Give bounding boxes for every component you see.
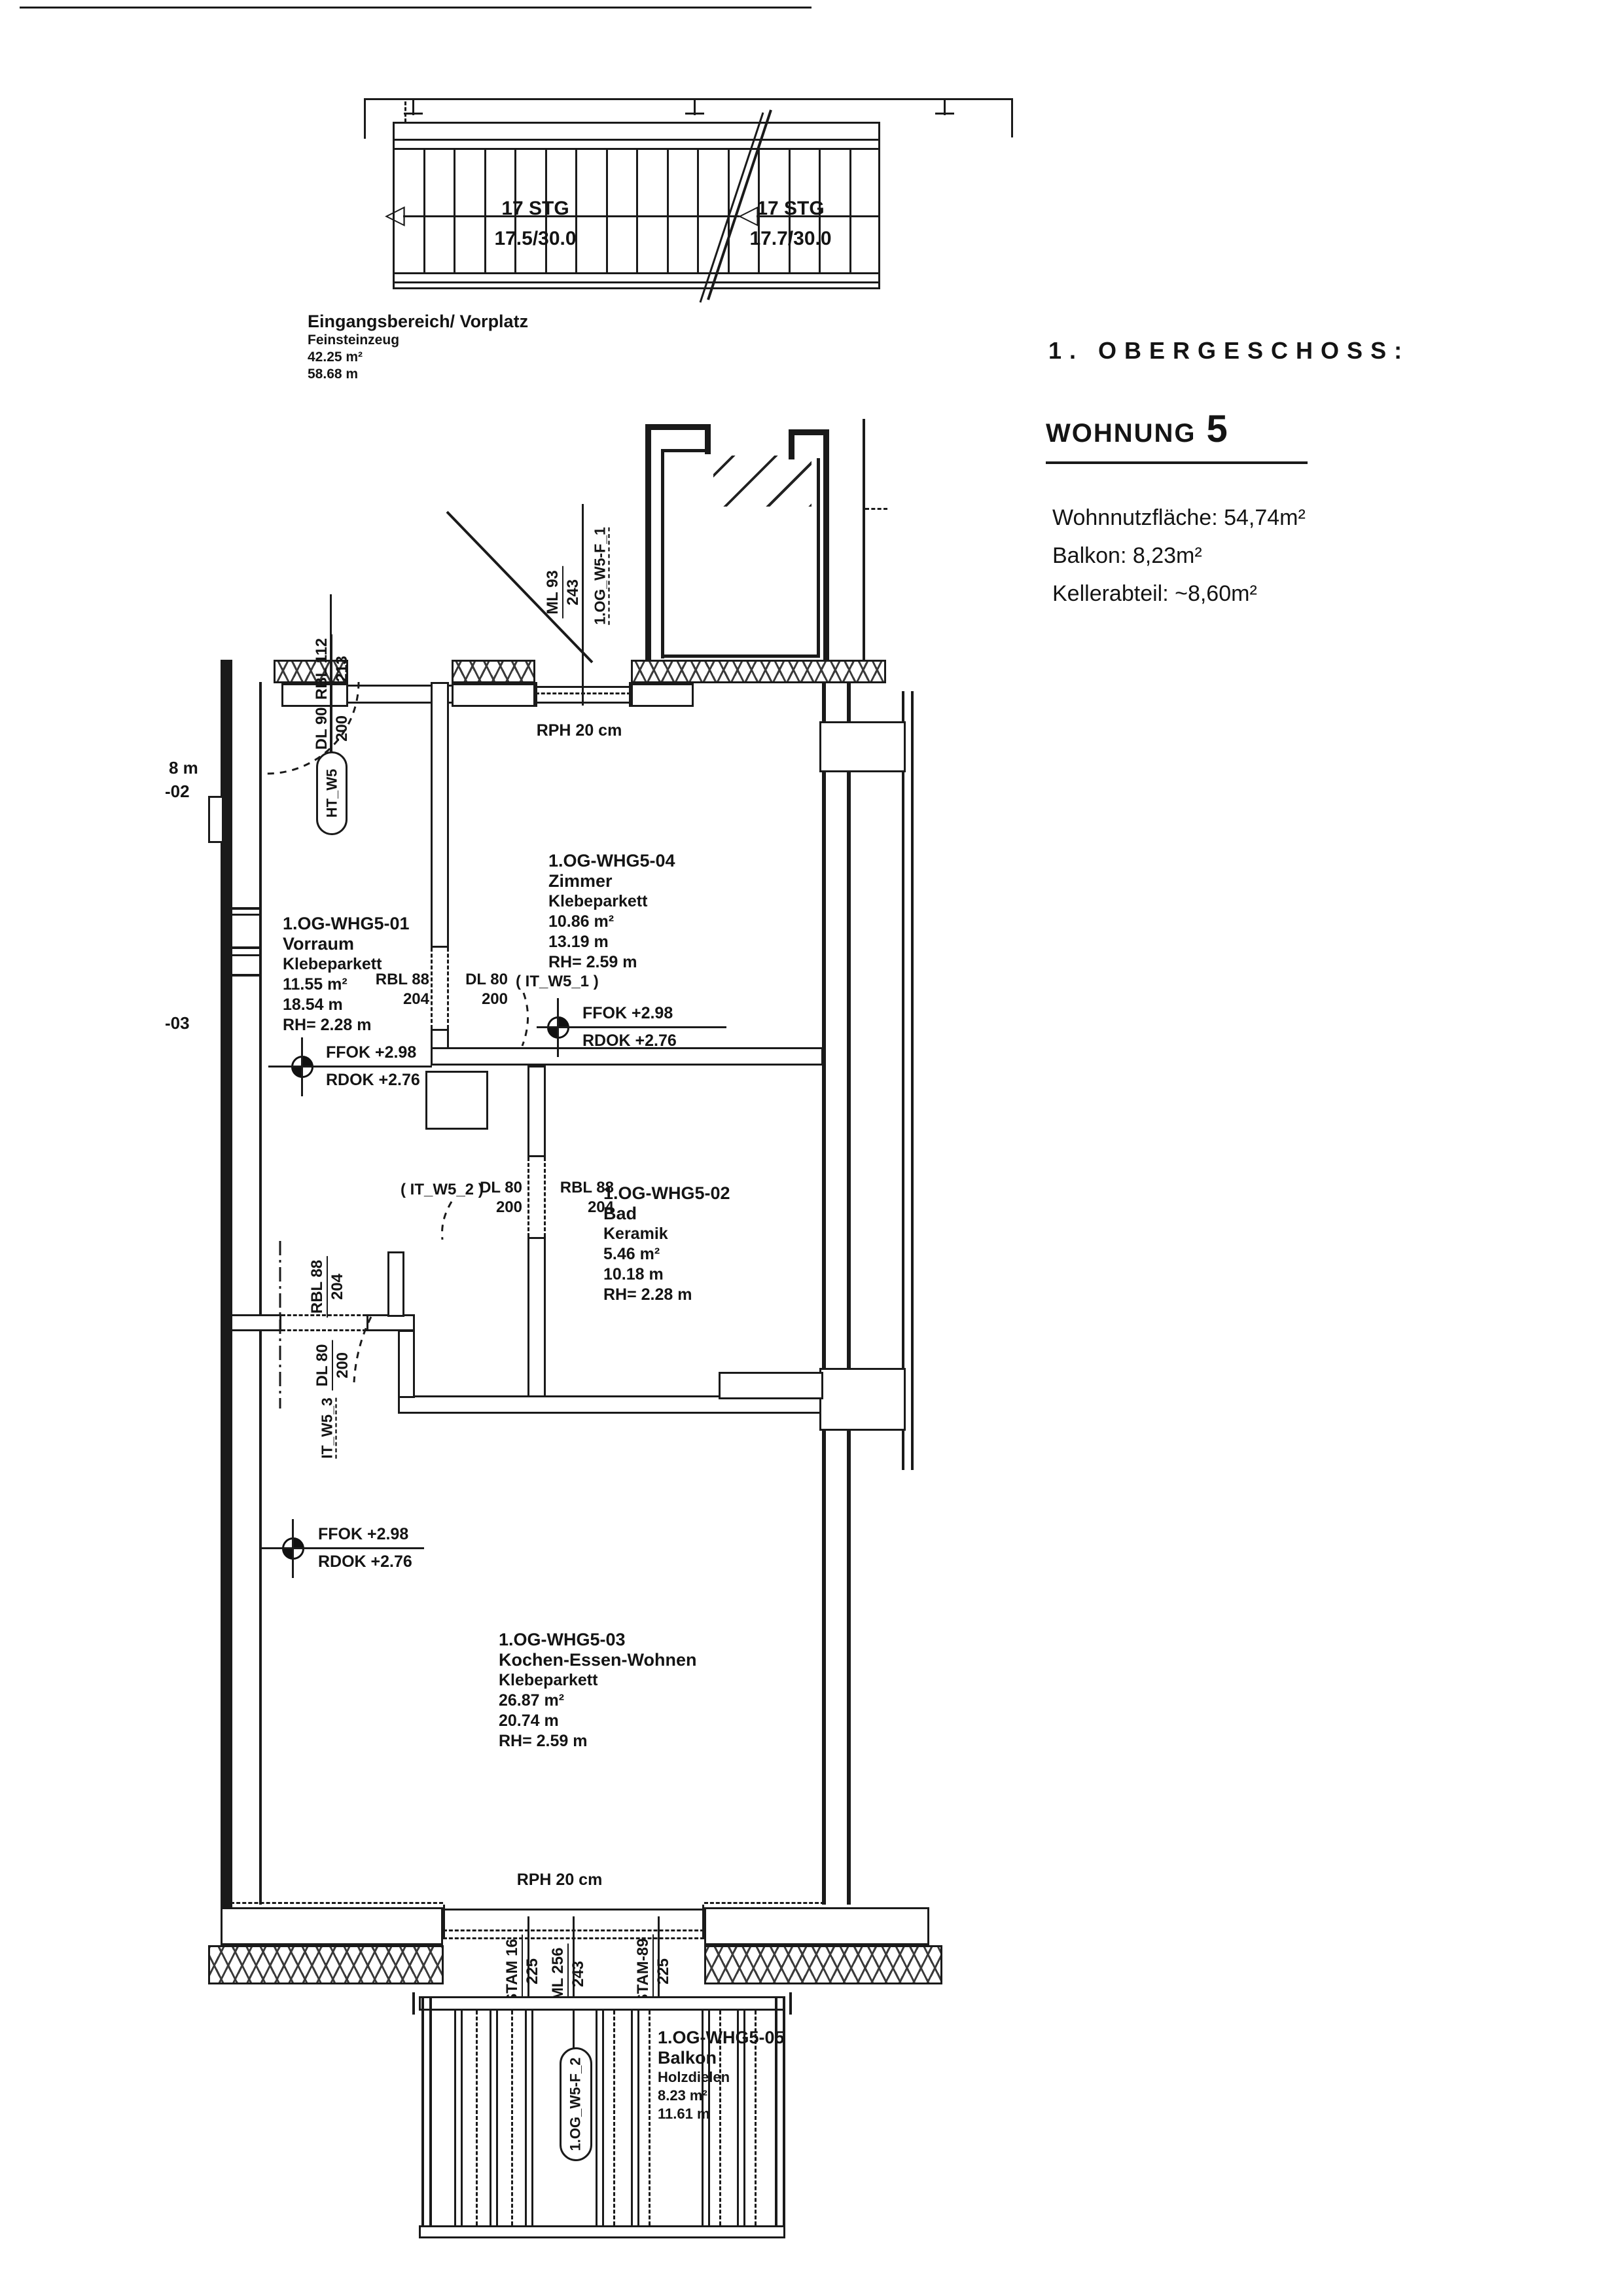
- entry-door-leaf: [447, 512, 592, 662]
- floorplan-page: ◁ ◁ 17 STG 17.5/30.0 17 STG 17.7/30.0 Ei…: [0, 0, 1623, 2296]
- kochen-door-swing: [354, 1317, 371, 1382]
- bad-door-swing: [442, 1202, 452, 1240]
- zimmer-door-swing: [522, 993, 528, 1046]
- plan-curves: [0, 0, 1623, 2296]
- entry-door-swing: [267, 682, 359, 774]
- stair-break-line: [700, 113, 763, 302]
- stair-break-line: [708, 110, 771, 300]
